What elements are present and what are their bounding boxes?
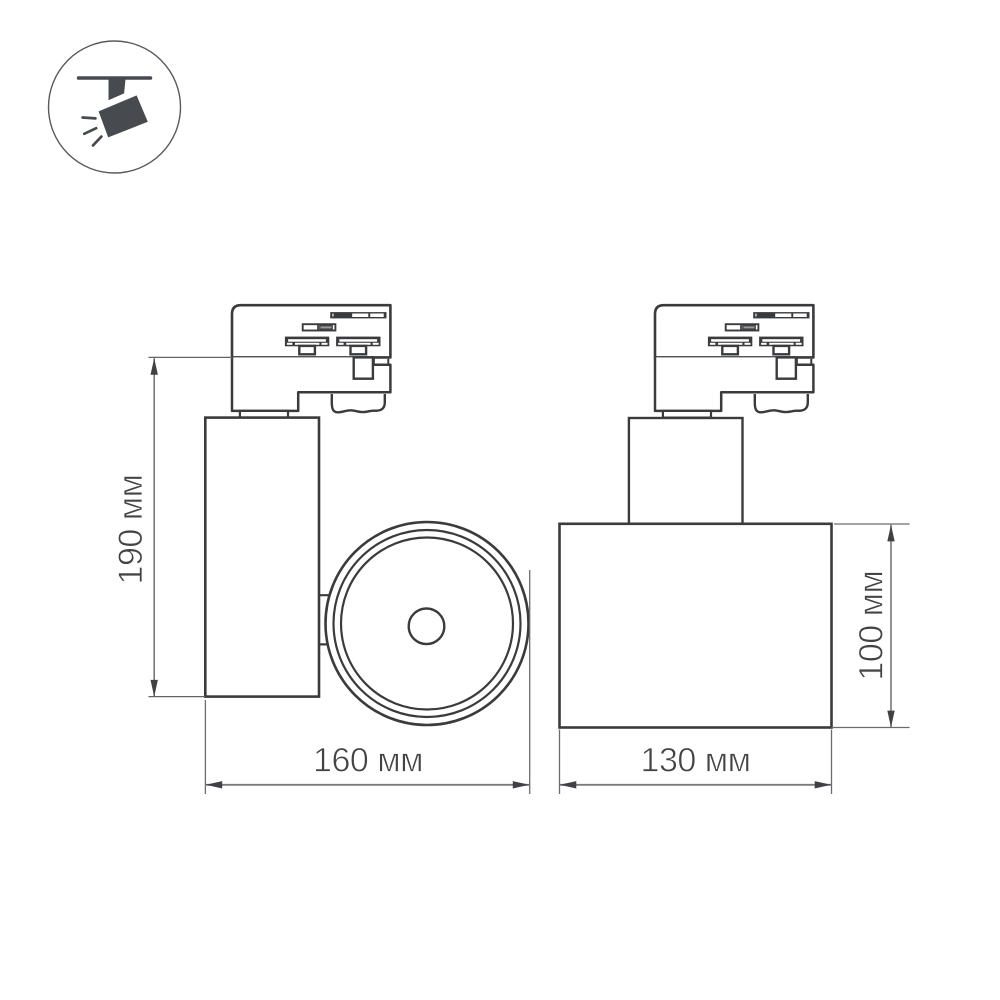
svg-text:160 мм: 160 мм — [313, 742, 423, 780]
svg-text:130 мм: 130 мм — [641, 742, 751, 780]
svg-text:190 мм: 190 мм — [112, 475, 150, 585]
svg-text:100 мм: 100 мм — [853, 571, 891, 681]
